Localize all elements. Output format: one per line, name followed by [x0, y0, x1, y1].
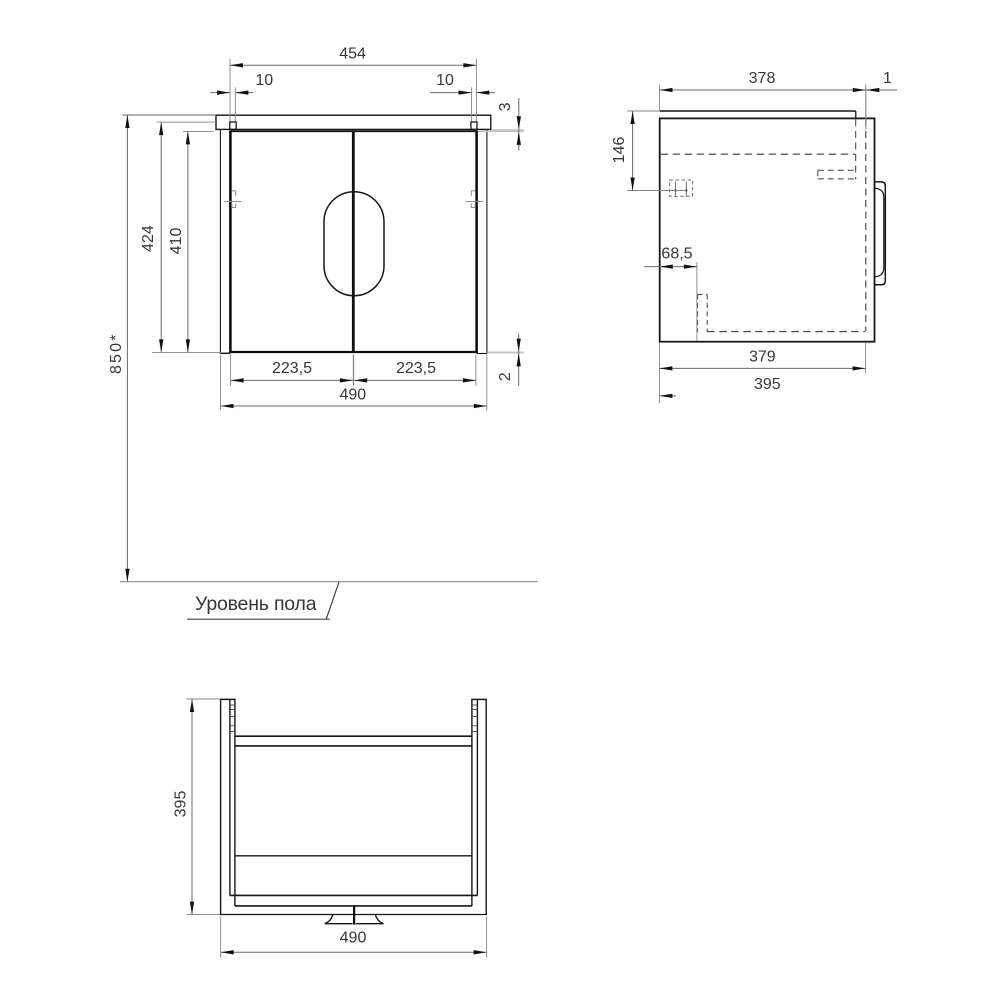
svg-text:10: 10: [255, 72, 273, 89]
svg-text:395: 395: [754, 376, 781, 393]
svg-text:424: 424: [140, 225, 157, 252]
svg-text:379: 379: [749, 348, 776, 365]
svg-text:223,5: 223,5: [272, 360, 312, 377]
svg-text:490: 490: [339, 387, 366, 404]
svg-text:410: 410: [168, 228, 185, 255]
svg-text:395: 395: [173, 791, 190, 818]
svg-text:1: 1: [883, 70, 892, 87]
svg-text:850*: 850*: [108, 332, 125, 374]
svg-text:Уровень пола: Уровень пола: [195, 593, 317, 615]
svg-text:10: 10: [436, 72, 454, 89]
svg-text:490: 490: [340, 929, 367, 946]
svg-text:68,5: 68,5: [661, 246, 692, 263]
svg-text:2: 2: [497, 372, 514, 381]
svg-text:3: 3: [497, 102, 514, 111]
svg-text:146: 146: [611, 137, 628, 164]
svg-text:378: 378: [749, 70, 776, 87]
svg-text:454: 454: [339, 46, 366, 63]
svg-text:223,5: 223,5: [396, 360, 436, 377]
